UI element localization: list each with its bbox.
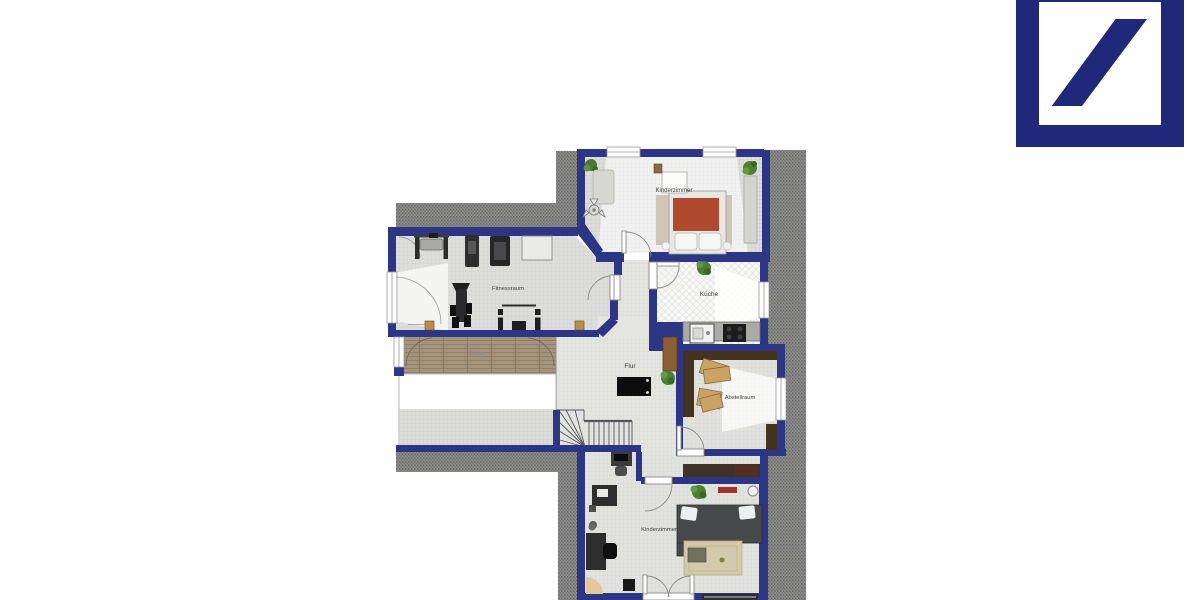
svg-text:Flur: Flur <box>624 363 636 370</box>
svg-text:Kinderzimmer: Kinderzimmer <box>641 527 677 533</box>
svg-text:Kinderzimmer: Kinderzimmer <box>655 188 692 194</box>
svg-text:Abstellraum: Abstellraum <box>725 395 756 401</box>
svg-text:Fitnessraum: Fitnessraum <box>492 286 524 292</box>
svg-text:Balkon: Balkon <box>469 351 485 357</box>
svg-text:Küche: Küche <box>700 291 719 298</box>
